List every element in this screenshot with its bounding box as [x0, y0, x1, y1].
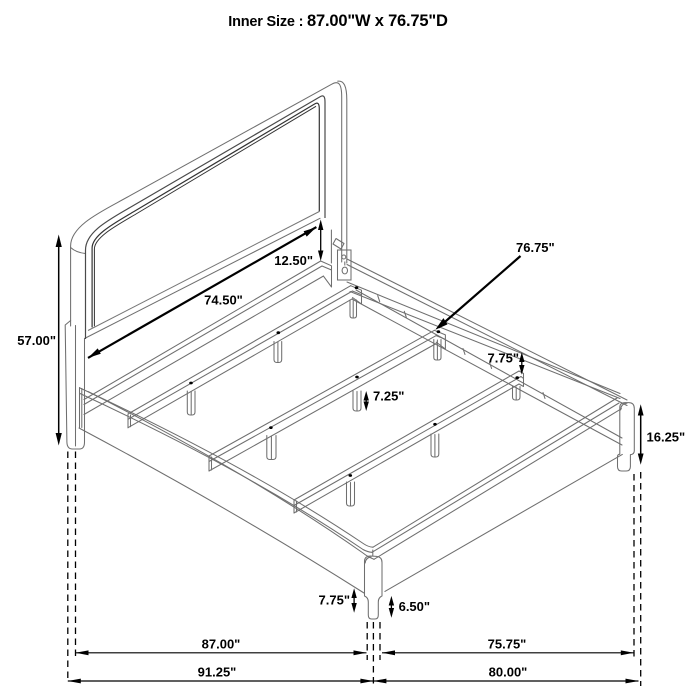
svg-text:75.75": 75.75"	[488, 637, 527, 652]
svg-text:7.75": 7.75"	[319, 593, 350, 608]
svg-text:74.50": 74.50"	[204, 292, 243, 307]
svg-text:80.00": 80.00"	[489, 665, 528, 680]
svg-text:Inner Size : 87.00"W x 76.75"D: Inner Size : 87.00"W x 76.75"D	[228, 12, 448, 30]
svg-text:7.75": 7.75"	[488, 351, 519, 366]
svg-text:12.50": 12.50"	[274, 253, 313, 268]
svg-text:16.25": 16.25"	[647, 429, 686, 444]
svg-text:76.75": 76.75"	[516, 240, 555, 255]
svg-text:91.25": 91.25"	[198, 665, 237, 680]
svg-text:6.50": 6.50"	[399, 599, 430, 614]
svg-text:57.00": 57.00"	[17, 333, 56, 348]
svg-text:87.00": 87.00"	[202, 637, 241, 652]
svg-text:7.25": 7.25"	[373, 388, 404, 403]
